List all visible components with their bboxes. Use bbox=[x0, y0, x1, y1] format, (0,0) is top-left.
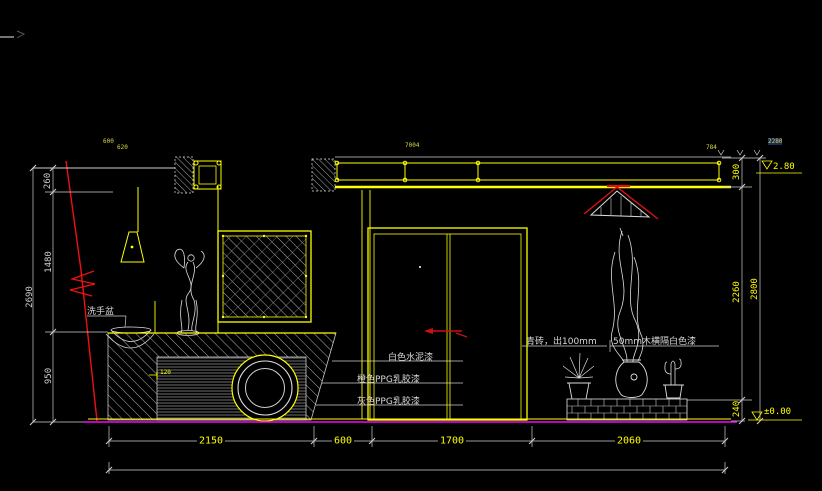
dim-right-300: 300 bbox=[732, 164, 742, 180]
top-small-dim-ticks bbox=[718, 150, 760, 155]
dim-left-260: 260 bbox=[43, 173, 53, 189]
long-shelf bbox=[335, 161, 731, 187]
pendant-lamp bbox=[121, 187, 144, 262]
porthole-circle bbox=[232, 355, 298, 421]
paint-white-label: 白色水泥漆 bbox=[388, 350, 433, 363]
sculpture-figure bbox=[175, 249, 204, 335]
dim-right-240: 240 bbox=[732, 401, 742, 417]
drawing-canvas[interactable] bbox=[0, 0, 822, 491]
dim-left-1480: 1480 bbox=[44, 251, 54, 273]
framed-panel bbox=[194, 161, 221, 189]
dim-right-2260: 2260 bbox=[732, 281, 742, 303]
dim-top-small-d: 784 bbox=[706, 144, 717, 151]
wall-art-panel bbox=[218, 231, 311, 322]
dim-bottom-2150: 2150 bbox=[197, 436, 225, 447]
counter-detail-dim: 120 bbox=[160, 369, 171, 376]
double-door bbox=[368, 228, 527, 420]
brick-label: 青砖，出100mm bbox=[526, 334, 597, 347]
dim-top-small-c: 7004 bbox=[405, 142, 419, 149]
vase bbox=[616, 360, 647, 404]
wood-trim-label: 50mm木横隔白色漆 bbox=[613, 334, 696, 347]
dim-top-small-b: 620 bbox=[117, 144, 128, 151]
dim-bottom-600: 600 bbox=[332, 436, 354, 447]
dim-bottom-1700: 1700 bbox=[438, 436, 466, 447]
elevation-top-value: 2.80 bbox=[773, 162, 795, 172]
bottom-dimension-lines bbox=[106, 426, 728, 474]
paint-gray-label: 灰色PPG乳胶漆 bbox=[357, 394, 420, 407]
elevation-bottom-value: ±0.00 bbox=[764, 407, 791, 417]
basin-label: 洗手盆 bbox=[87, 304, 114, 317]
hatch-column-1 bbox=[175, 157, 193, 193]
paint-orange-label: 橙色PPG乳胶漆 bbox=[357, 372, 420, 385]
cad-viewport[interactable]: 洗手盆 白色水泥漆 橙色PPG乳胶漆 灰色PPG乳胶漆 青砖，出100mm 50… bbox=[0, 0, 822, 491]
spotlight-awning bbox=[584, 186, 658, 219]
basin-label-leader bbox=[87, 316, 126, 327]
dim-bottom-2060: 2060 bbox=[615, 436, 643, 447]
stray-cursor-mark bbox=[0, 31, 24, 38]
hatch-column-2 bbox=[312, 159, 335, 191]
door-handle-mark bbox=[424, 328, 467, 337]
dim-left-2690: 2690 bbox=[25, 286, 35, 308]
potted-plant bbox=[563, 353, 594, 399]
dim-top-small-e: 2280 bbox=[768, 138, 782, 145]
dim-left-950: 950 bbox=[44, 368, 54, 384]
cactus bbox=[663, 359, 684, 398]
reception-counter bbox=[108, 333, 336, 421]
red-revision-line bbox=[66, 161, 97, 421]
brick-platform bbox=[567, 399, 687, 420]
door-dot bbox=[419, 266, 421, 268]
dim-top-small-a: 600 bbox=[103, 138, 114, 145]
ceiling-beam-shelf bbox=[175, 157, 731, 193]
dim-right-2800: 2800 bbox=[750, 278, 760, 300]
